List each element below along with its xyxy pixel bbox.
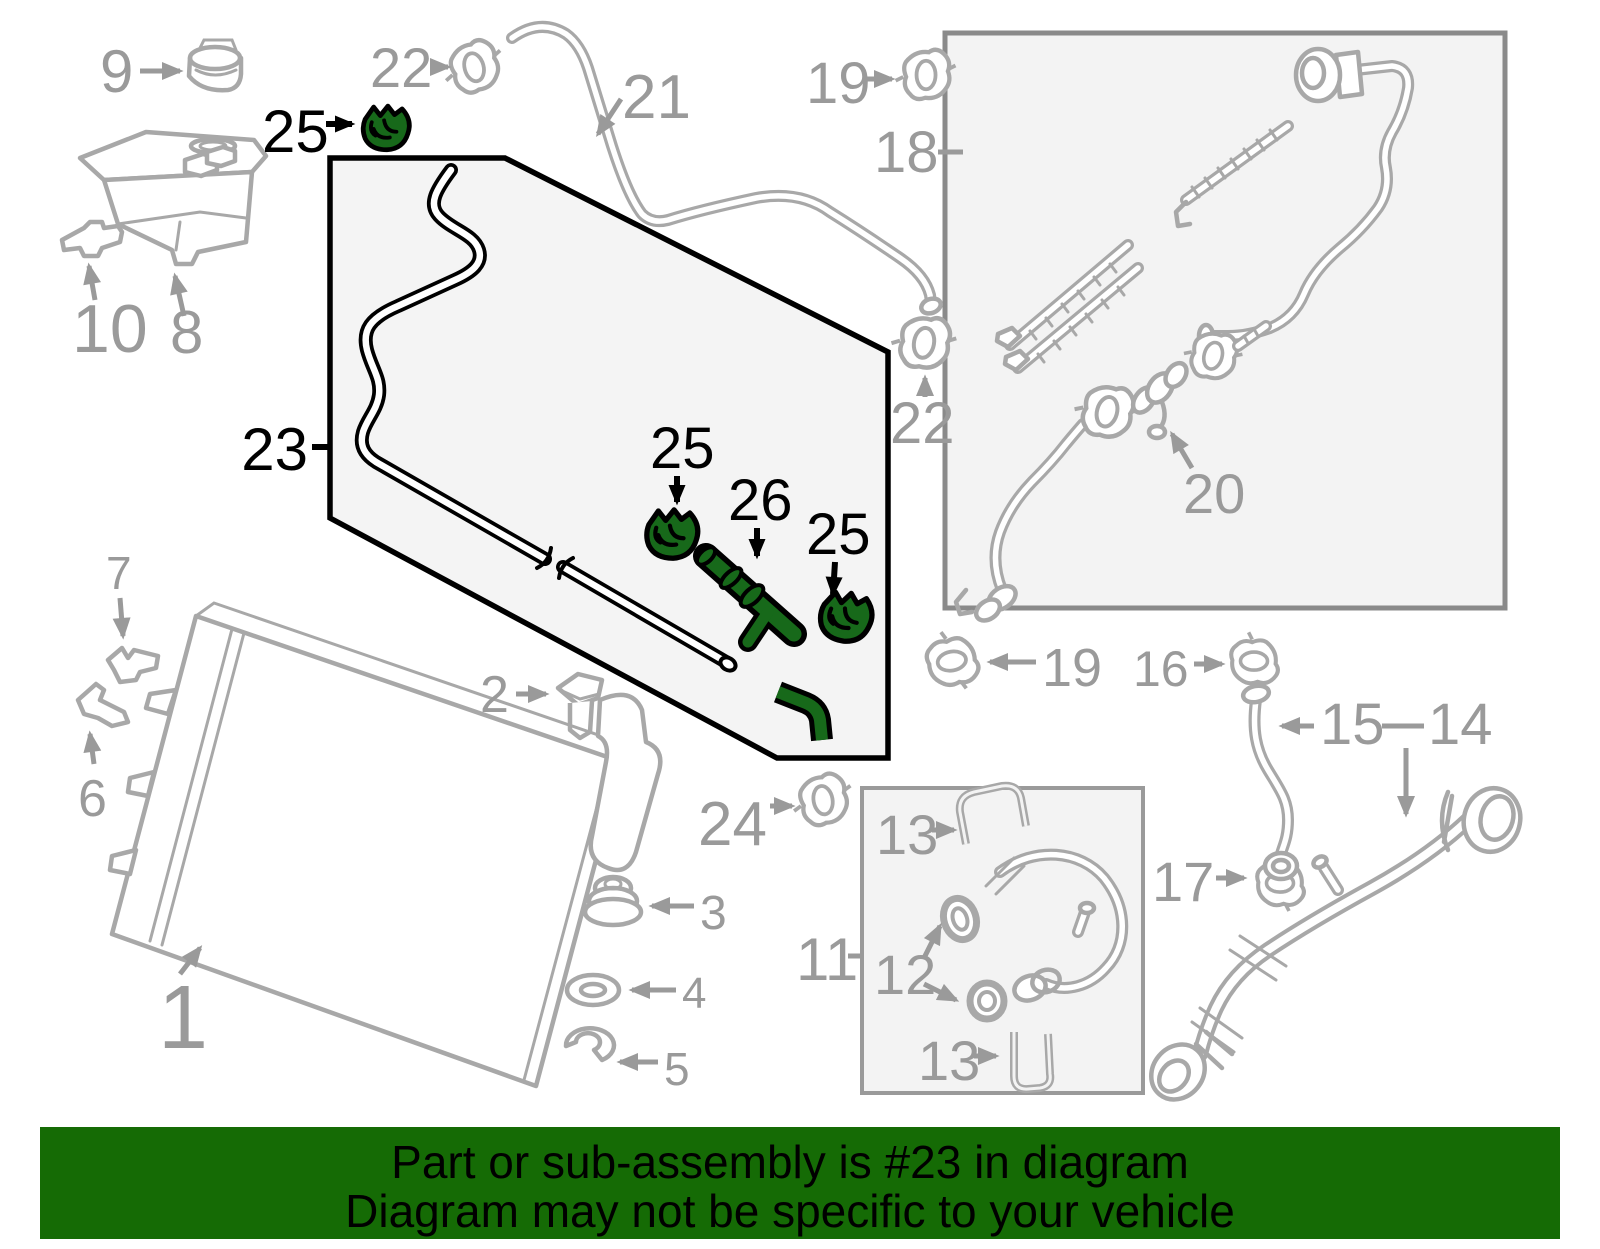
bracket-7-drawing (108, 648, 158, 682)
hose-clamp-16-drawing (1231, 632, 1278, 689)
callout-6-label: 6 (78, 770, 107, 828)
callout-4-label: 4 (682, 969, 706, 1018)
clip-5-drawing (566, 1028, 614, 1060)
reservoir-cap-drawing (189, 40, 241, 90)
callout-5-label: 5 (664, 1043, 690, 1095)
callout-18-label: 18 (874, 120, 939, 185)
callout-25-top-label: 25 (262, 98, 329, 165)
parts-diagram-page: 9 22 25 21 19 18 10 8 23 25 26 25 22 20 … (0, 0, 1600, 1249)
callout-21-label: 21 (622, 63, 691, 132)
callout-2-label: 2 (480, 666, 509, 724)
reservoir-bracket-drawing (62, 222, 122, 256)
callout-17-label: 17 (1152, 850, 1214, 913)
bracket-6-drawing (78, 684, 128, 726)
retaining-clip-25-left-drawing (647, 510, 698, 558)
callout-20-label: 20 (1183, 462, 1245, 525)
callout-9-label: 9 (100, 38, 133, 105)
highlight-banner: Part or sub-assembly is #23 in diagram D… (40, 1127, 1560, 1239)
callout-7-label: 7 (106, 547, 132, 599)
callout-24-label: 24 (698, 790, 767, 859)
callout-16-label: 16 (1133, 641, 1189, 697)
highlighted-assembly-23-panel (330, 158, 888, 758)
callout-13-bottom-label: 13 (918, 1029, 980, 1092)
washer-4-drawing (567, 975, 619, 1005)
callout-22-top-label: 22 (370, 36, 432, 99)
hose-14-drawing (1140, 782, 1527, 1110)
retaining-clip-25-top-drawing (363, 106, 409, 150)
callout-8-label: 8 (170, 299, 203, 366)
callout-3-label: 3 (700, 887, 727, 940)
callout-19-mid-label: 19 (1042, 638, 1102, 698)
banner-line1: Part or sub-assembly is #23 in diagram (391, 1136, 1189, 1188)
callout-13-top-label: 13 (876, 803, 938, 866)
grommet-3-drawing (585, 877, 641, 925)
banner-line2: Diagram may not be specific to your vehi… (345, 1185, 1235, 1237)
callout-19-top-label: 19 (806, 51, 871, 116)
callout-25-right-label: 25 (806, 502, 871, 567)
callout-14-label: 14 (1428, 692, 1493, 757)
callout-10-label: 10 (72, 291, 148, 367)
callout-23-label: 23 (241, 416, 308, 483)
callout-26-label: 26 (728, 468, 793, 533)
hose-clamp-22-top-drawing (438, 35, 509, 98)
callout-25-left-label: 25 (650, 416, 715, 481)
hose-15-drawing (1242, 683, 1297, 879)
parts-diagram: 9 22 25 21 19 18 10 8 23 25 26 25 22 20 … (0, 0, 1600, 1249)
callout-15-label: 15 (1320, 692, 1385, 757)
callout-1-label: 1 (158, 968, 208, 1068)
hose-clamp-19-mid-drawing (923, 627, 982, 695)
callout-11-label: 11 (796, 926, 858, 993)
hose-clamp-24-drawing (789, 770, 857, 829)
callout-22-mid-label: 22 (890, 391, 955, 456)
